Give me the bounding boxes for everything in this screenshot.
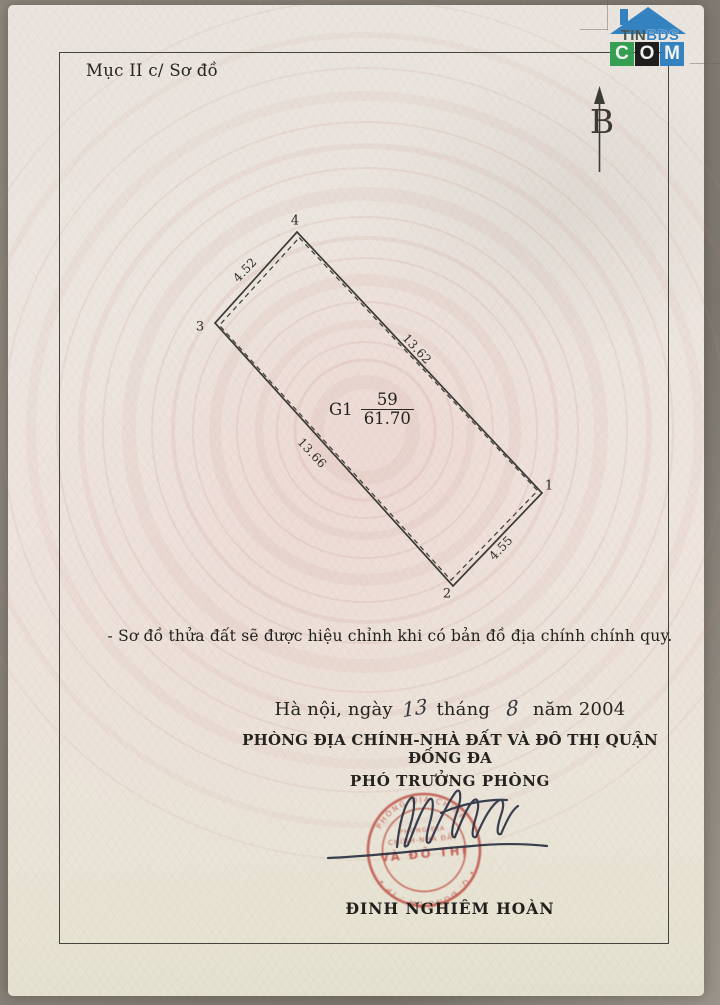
- signer-name: ĐINH NGHIÊM HOÀN: [240, 899, 660, 918]
- date-line: Hà nội, ngày 13 tháng 8 năm 2004: [240, 696, 660, 720]
- document-border-frame: [59, 52, 669, 944]
- logo-tile-c: C: [610, 42, 634, 66]
- parcel-area: 61.70: [361, 409, 414, 428]
- department-name: PHÒNG ĐỊA CHÍNH-NHÀ ĐẤT VÀ ĐÔ THỊ QUẬN Đ…: [240, 731, 660, 767]
- corner-label-2: 2: [443, 587, 451, 602]
- logo-com-tiles: C O M: [610, 42, 684, 66]
- parcel-code: G1: [329, 400, 353, 419]
- date-thang: tháng: [436, 699, 490, 720]
- date-nam: năm: [533, 699, 573, 720]
- handwritten-day: 13: [401, 694, 427, 723]
- corner-label-4: 4: [291, 214, 299, 229]
- signer-title: PHÓ TRƯỞNG PHÒNG: [240, 772, 660, 790]
- tinbds-watermark-logo: TINBDS C O M: [606, 4, 694, 66]
- parcel-label: G1 59 61.70: [329, 391, 414, 428]
- date-prefix: Hà nội, ngày: [275, 699, 393, 720]
- corner-label-1: 1: [545, 479, 553, 494]
- section-label: Mục II c/ Sơ đồ: [86, 61, 218, 80]
- scanned-land-document: PHÒNG ĐỊA CHÍNH • Q. ĐỐNG ĐA . TP • PHÒN…: [0, 0, 720, 1005]
- logo-wordmark: TINBDS: [606, 28, 694, 43]
- adjustment-note: - Sơ đồ thửa đất sẽ được hiệu chỉnh khi …: [80, 627, 700, 645]
- parcel-fraction: 59 61.70: [361, 391, 414, 428]
- parcel-number: 59: [372, 391, 403, 409]
- north-label: B: [587, 102, 617, 141]
- handwritten-month: 8: [506, 695, 520, 721]
- signing-block: Hà nội, ngày 13 tháng 8 năm 2004 PHÒNG Đ…: [240, 696, 660, 790]
- logo-tile-m: M: [660, 42, 684, 66]
- date-year: 2004: [579, 699, 626, 720]
- logo-tile-o: O: [635, 42, 659, 66]
- corner-label-3: 3: [196, 320, 204, 335]
